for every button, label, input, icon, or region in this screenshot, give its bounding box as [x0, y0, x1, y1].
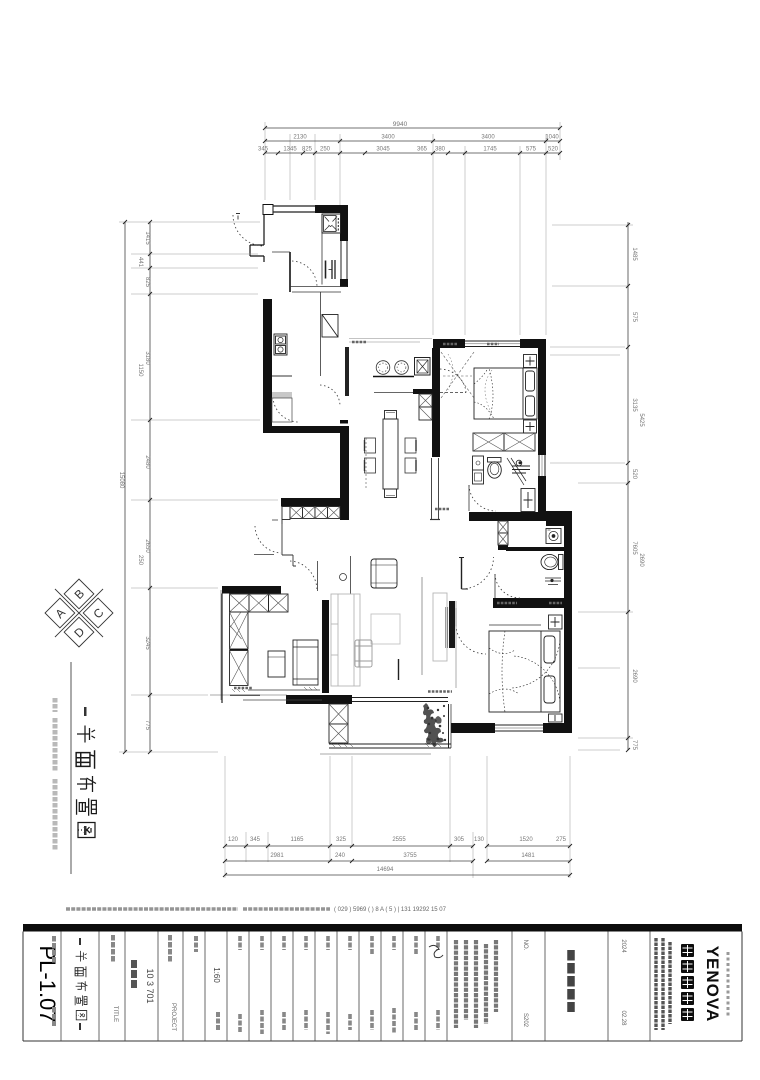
svg-text:575: 575 [631, 312, 637, 323]
svg-text:1485: 1485 [631, 247, 637, 261]
svg-text:520: 520 [631, 469, 637, 480]
svg-text:2650: 2650 [144, 539, 150, 553]
svg-text:345: 345 [258, 147, 269, 153]
svg-text:345: 345 [250, 837, 261, 843]
svg-text:10 3 701: 10 3 701 [145, 968, 155, 1003]
svg-text:305: 305 [454, 837, 465, 843]
svg-text:2480: 2480 [144, 455, 150, 469]
svg-text:15080: 15080 [118, 472, 124, 489]
svg-text:1745: 1745 [483, 147, 497, 153]
svg-text:240: 240 [335, 853, 346, 859]
svg-text:3755: 3755 [403, 853, 417, 859]
svg-text:PL-1.07: PL-1.07 [35, 945, 60, 1022]
svg-text:2024: 2024 [620, 939, 626, 953]
svg-text:3400: 3400 [381, 135, 395, 141]
svg-text:825: 825 [302, 147, 313, 153]
svg-text:1520: 1520 [519, 837, 533, 843]
svg-text:575: 575 [526, 147, 537, 153]
svg-text:2690: 2690 [638, 553, 644, 567]
svg-text:120: 120 [228, 837, 239, 843]
svg-text:2981: 2981 [270, 853, 284, 859]
svg-text:1345: 1345 [283, 147, 297, 153]
svg-text:S202: S202 [522, 1013, 528, 1028]
svg-text:3045: 3045 [376, 147, 390, 153]
svg-text:3180: 3180 [144, 351, 150, 365]
svg-text:1150: 1150 [137, 364, 143, 378]
svg-text:02.28: 02.28 [620, 1010, 626, 1026]
svg-text:1:60: 1:60 [212, 967, 221, 983]
svg-text:14694: 14694 [377, 867, 394, 873]
svg-text:775: 775 [144, 720, 150, 731]
svg-text:825: 825 [144, 277, 150, 288]
svg-text:7605: 7605 [631, 541, 637, 555]
svg-text:1481: 1481 [521, 853, 535, 859]
svg-text:NO.: NO. [522, 940, 528, 951]
svg-text:520: 520 [548, 147, 559, 153]
svg-text:1165: 1165 [291, 837, 305, 843]
svg-text:250: 250 [137, 555, 143, 566]
svg-text:PROJECT: PROJECT [170, 1003, 176, 1031]
svg-text:365: 365 [417, 147, 428, 153]
svg-text:380: 380 [435, 147, 446, 153]
svg-text:2130: 2130 [293, 135, 307, 141]
svg-text:250: 250 [320, 147, 331, 153]
svg-text:275: 275 [556, 837, 567, 843]
svg-text:( 029 ) 5969 ( ) 8 A ( 5 ): ( 029 ) 5969 ( ) 8 A ( 5 ) | 131 19292 1… [334, 907, 447, 913]
svg-text:441: 441 [137, 257, 143, 268]
svg-text:3245: 3245 [144, 636, 150, 650]
svg-text:YENOVA: YENOVA [703, 946, 722, 1023]
svg-text:325: 325 [336, 837, 347, 843]
svg-text:1415: 1415 [144, 231, 150, 245]
svg-text:3400: 3400 [481, 135, 495, 141]
svg-text:5425: 5425 [638, 413, 644, 427]
svg-text:1040: 1040 [545, 135, 559, 141]
svg-text:9940: 9940 [393, 121, 408, 128]
svg-text:2555: 2555 [392, 837, 406, 843]
svg-text:775: 775 [631, 740, 637, 751]
svg-text:2690: 2690 [631, 669, 637, 683]
svg-text:130: 130 [474, 837, 485, 843]
svg-text:3135: 3135 [631, 398, 637, 412]
svg-text:TITLE: TITLE [112, 1006, 118, 1022]
